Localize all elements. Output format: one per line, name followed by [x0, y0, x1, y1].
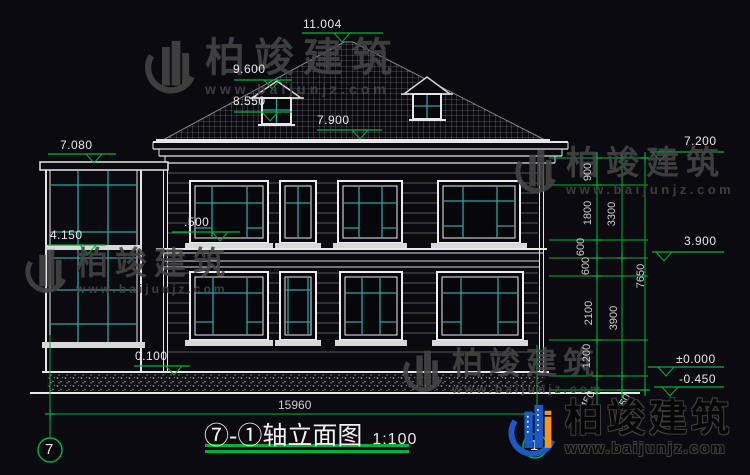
dim-900: 900 [582, 163, 594, 181]
windows-second-floor [185, 181, 527, 248]
axis-number-7: 7 [45, 441, 53, 458]
baijun-logo-icon [141, 38, 197, 98]
watermark-url: www.baijunjz.com [566, 182, 734, 197]
dim-total-width: 15960 [278, 398, 311, 412]
watermark-bottom: 柏竣建筑 www.baijunjz.com [400, 348, 604, 396]
brand-logo-icon [505, 400, 559, 462]
level-label-right-floor2: 3.900 [684, 234, 717, 248]
level-label-sunroom-mid: 4.150 [50, 228, 83, 242]
brand-name: 柏竣建筑 [565, 400, 733, 440]
baijun-logo-icon [22, 247, 68, 297]
dim-7650: 7650 [635, 264, 647, 288]
watermark-top: 柏竣建筑 www.baijunjz.com [141, 38, 401, 98]
level-label-sunroom-top: 7.080 [60, 138, 93, 152]
windows-first-floor [185, 272, 528, 346]
level-label-roof-upper: 9.600 [233, 62, 266, 76]
brand-logo: 柏竣建筑 www.baijunjz.com [505, 400, 733, 462]
watermark-right: 柏竣建筑 www.baijunjz.com [512, 146, 734, 198]
dim-3900: 3900 [608, 306, 620, 330]
level-label-right-parapet: 7.200 [684, 134, 717, 148]
level-label-peak: 11.004 [303, 17, 342, 31]
brand-url: www.baijunjz.com [565, 440, 733, 457]
level-label-zero: ±0.000 [676, 352, 716, 366]
watermark-url: www.baijunjz.com [452, 382, 604, 396]
cad-elevation-screenshot: 柏竣建筑 www.baijunjz.com 柏竣建筑 www.baijunjz.… [0, 0, 750, 475]
dim-1200: 1200 [581, 344, 593, 368]
level-label-roof-dormer: 8.550 [233, 94, 266, 108]
watermark-brand: 柏竣建筑 [76, 247, 232, 279]
dim-600a: 600 [575, 238, 587, 256]
watermark-left: 柏竣建筑 www.baijunjz.com [22, 247, 232, 297]
level-label-floor2: .500 [184, 215, 209, 229]
baijun-logo-icon [512, 146, 558, 198]
baijun-logo-icon [400, 348, 444, 396]
drawing-title: ⑦-①轴立面图 1:100 [204, 416, 417, 452]
level-label-plinth: 0.100 [135, 349, 168, 363]
dim-600b: 600 [580, 257, 592, 275]
dim-3300: 3300 [606, 202, 618, 226]
level-label-ground: -0.450 [679, 372, 716, 386]
cornice [153, 142, 568, 163]
level-label-roof-eave: 7.900 [317, 113, 350, 127]
dim-2100: 2100 [583, 301, 595, 325]
watermark-url: www.baijunjz.com [76, 282, 232, 296]
drawing-scale: 1:100 [372, 431, 417, 449]
drawing-title-text: ⑦-①轴立面图 [204, 416, 362, 452]
dim-1800: 1800 [582, 201, 594, 225]
